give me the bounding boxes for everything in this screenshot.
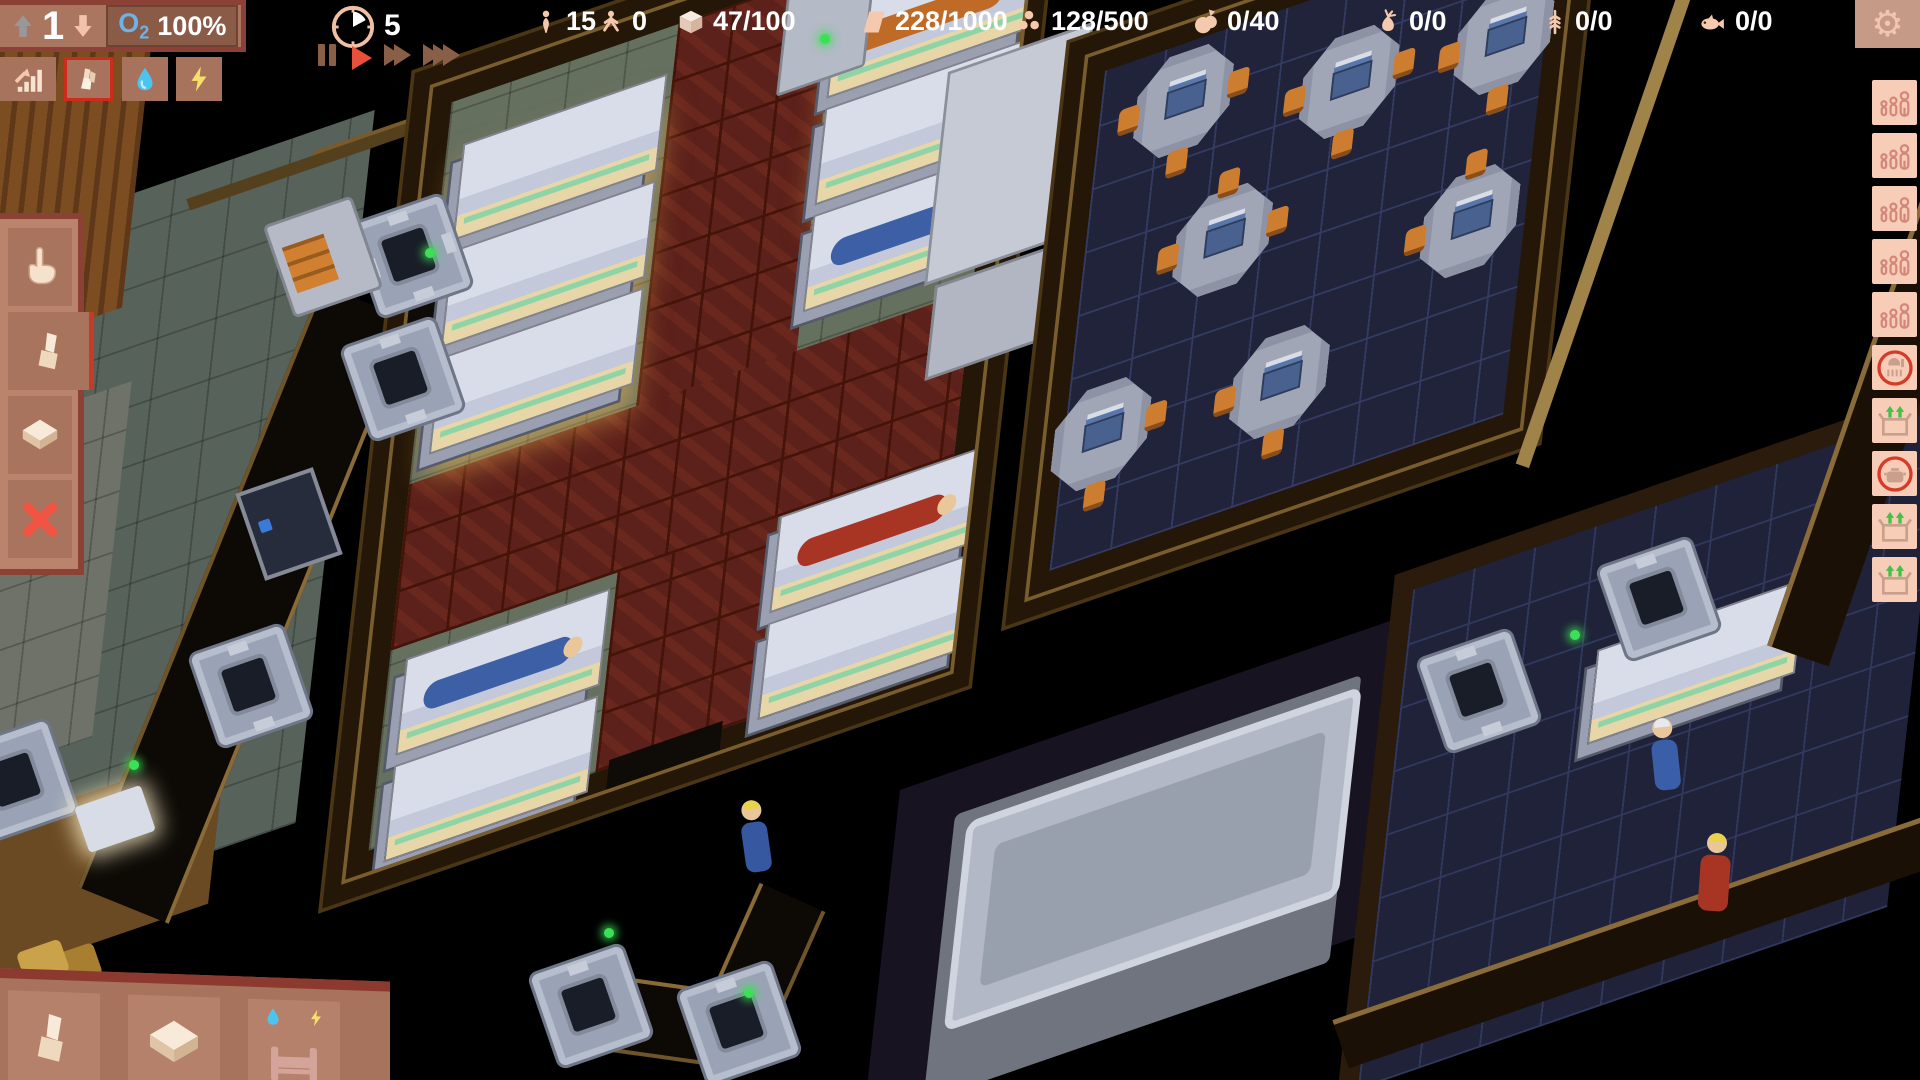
- habitat-circle-icon: [1875, 348, 1915, 388]
- colonist-body: [1697, 854, 1731, 912]
- floor-icon: [17, 412, 63, 458]
- colonist-head: [1651, 717, 1673, 739]
- connector-tab: [1455, 645, 1477, 661]
- resource-value: 128/500: [1051, 6, 1149, 37]
- wall-icon: [24, 1007, 84, 1069]
- colonist-head: [562, 634, 583, 660]
- resource-wheat: 0/0: [1542, 6, 1613, 37]
- settings-button[interactable]: ⚙: [1855, 0, 1920, 48]
- sidebar-population-5[interactable]: [1872, 292, 1917, 337]
- connector-tab: [413, 286, 435, 302]
- resource-colonists: 15: [533, 6, 596, 37]
- resource-fruit: 0/40: [1190, 6, 1280, 37]
- speed-controls: [318, 44, 460, 71]
- ore-icon: [1014, 7, 1044, 37]
- level-value: 1: [42, 5, 64, 47]
- colonist-hair: [1709, 833, 1726, 843]
- fruit-icon: [1190, 7, 1220, 37]
- sleeping-colonist[interactable]: [796, 491, 948, 570]
- quickbar-build[interactable]: [64, 57, 113, 101]
- supply-box-icon: [1875, 401, 1915, 441]
- family-icon: [1876, 137, 1914, 175]
- status-led: [1570, 630, 1580, 640]
- resource-value: 228/1000: [895, 6, 1008, 37]
- fish-icon: [1696, 7, 1728, 37]
- family-icon: [1876, 296, 1914, 334]
- supply-box-icon: [1875, 507, 1915, 547]
- status-led: [744, 988, 754, 998]
- family-icon: [1876, 243, 1914, 281]
- panel-icon: [860, 7, 888, 37]
- status-led: [820, 34, 830, 44]
- level-up-arrow-icon[interactable]: [10, 11, 36, 41]
- resource-value: 15: [566, 6, 596, 37]
- colonist-hair: [1653, 717, 1670, 728]
- game-viewport[interactable]: [0, 0, 1920, 1080]
- cabinet-drawers: [282, 234, 339, 294]
- resource-value: 47/100: [713, 6, 796, 37]
- colonist-figure[interactable]: [1697, 832, 1732, 912]
- build-options-panel: [0, 968, 390, 1080]
- colonist-head: [936, 491, 957, 517]
- fastest-icon: [443, 44, 460, 66]
- resource-ore: 128/500: [1014, 6, 1149, 37]
- resource-value: 0/0: [1575, 6, 1613, 37]
- build-icon: [73, 63, 105, 95]
- resource-panels: 228/1000: [860, 6, 1008, 37]
- colonist-figure[interactable]: [737, 799, 773, 874]
- resource-value: 0/40: [1227, 6, 1280, 37]
- colonist-hair: [742, 799, 759, 810]
- status-led: [425, 248, 435, 258]
- connector-tab: [227, 640, 249, 656]
- airlock-hatch: [0, 752, 41, 808]
- colonist-body: [740, 820, 773, 873]
- connector-tab: [715, 977, 737, 993]
- airlock-hatch: [220, 657, 276, 713]
- airlock-hatch: [1448, 662, 1504, 718]
- clock-value: 5: [384, 4, 401, 48]
- connector-tab: [379, 333, 401, 349]
- quickbar-power[interactable]: [176, 57, 222, 101]
- cooking-pot-circle-icon: [1875, 454, 1915, 494]
- tool-cancel[interactable]: [8, 480, 72, 558]
- wheat-icon: [1542, 7, 1568, 37]
- water-icon: [130, 64, 160, 94]
- resource-storage: 47/100: [676, 6, 796, 37]
- airlock-hatch: [708, 994, 764, 1050]
- build-option-floor[interactable]: [128, 994, 220, 1080]
- sidebar-population-3[interactable]: [1872, 186, 1917, 231]
- quickbar-water[interactable]: [122, 57, 168, 101]
- sidebar-population-4[interactable]: [1872, 239, 1917, 284]
- resource-fish: 0/0: [1696, 6, 1773, 37]
- connector-tab: [405, 409, 427, 425]
- colonist-body: [1651, 739, 1682, 791]
- colonist-head: [740, 799, 763, 822]
- power-bolt-icon: [306, 1008, 326, 1029]
- tool-build-wall[interactable]: [8, 312, 94, 390]
- sidebar-population-1[interactable]: [1872, 80, 1917, 125]
- connector-tab: [387, 210, 409, 226]
- panel-light: [258, 518, 273, 533]
- o2-label: O2: [118, 8, 149, 43]
- resource-value: 0: [632, 6, 647, 37]
- sidebar-kitchen[interactable]: [1872, 451, 1917, 496]
- fast-forward-button[interactable]: [384, 44, 411, 71]
- build-tool-panel: [0, 213, 84, 575]
- supply-box-icon: [1875, 560, 1915, 600]
- connector-tab: [253, 716, 275, 732]
- fastest-button[interactable]: [423, 44, 460, 71]
- bed-icon: [265, 1041, 323, 1080]
- dining-room[interactable]: [1024, 0, 1584, 602]
- status-led: [604, 928, 614, 938]
- hand-icon: [17, 244, 63, 290]
- water-drop-icon: [262, 1005, 284, 1028]
- stats-icon: [11, 62, 45, 96]
- sidebar-supply-box-3[interactable]: [1872, 557, 1917, 602]
- connector-tab: [1635, 553, 1657, 569]
- o2-value: 100%: [157, 11, 226, 42]
- power-icon: [184, 64, 214, 94]
- pause-icon: [329, 44, 336, 66]
- oxygen-readout: O2 100%: [106, 5, 238, 47]
- build-option-bed[interactable]: [248, 999, 340, 1080]
- quickbar-stats[interactable]: [0, 57, 56, 101]
- resource-value: 0/0: [1409, 6, 1447, 37]
- airlock-hatch: [372, 350, 428, 406]
- connector-tab: [1481, 721, 1503, 737]
- cancel-x-icon: [19, 498, 61, 540]
- resource-vegetables: 0/0: [1374, 6, 1447, 37]
- pause-icon: [318, 44, 325, 66]
- level-down-arrow-icon[interactable]: [70, 11, 96, 41]
- gear-icon: ⚙: [1871, 3, 1903, 44]
- family-icon: [1876, 84, 1914, 122]
- pause-button[interactable]: [318, 44, 340, 71]
- wall-icon: [28, 328, 74, 374]
- build-option-wall[interactable]: [8, 990, 100, 1080]
- level-o2-panel: 1 O2 100%: [0, 0, 246, 52]
- sidebar-supply-box-1[interactable]: [1872, 398, 1917, 443]
- fast-forward-icon: [394, 44, 411, 66]
- person-icon: [533, 7, 559, 37]
- colonist-head: [1706, 832, 1727, 853]
- crate-icon: [676, 7, 706, 37]
- family-icon: [1876, 190, 1914, 228]
- airlock-hatch: [560, 977, 616, 1033]
- resource-value: 0/0: [1735, 6, 1773, 37]
- tool-build-floor[interactable]: [8, 396, 72, 474]
- child-icon: [597, 7, 625, 37]
- play-button[interactable]: [352, 46, 372, 70]
- sidebar-supply-box-2[interactable]: [1872, 504, 1917, 549]
- vegetable-icon: [1374, 7, 1402, 37]
- connector-tab: [441, 232, 457, 254]
- sleeping-colonist[interactable]: [422, 633, 574, 712]
- colonist-head: [993, 0, 1014, 3]
- dormitory-room[interactable]: [341, 0, 1042, 885]
- sidebar-habitat[interactable]: [1872, 345, 1917, 390]
- airlock-hatch: [1628, 570, 1684, 626]
- connector-tab: [567, 960, 589, 976]
- sidebar-population-2[interactable]: [1872, 133, 1917, 178]
- resource-children: 0: [597, 6, 647, 37]
- tool-select[interactable]: [8, 228, 72, 306]
- status-led: [129, 760, 139, 770]
- floor-icon: [142, 1009, 206, 1075]
